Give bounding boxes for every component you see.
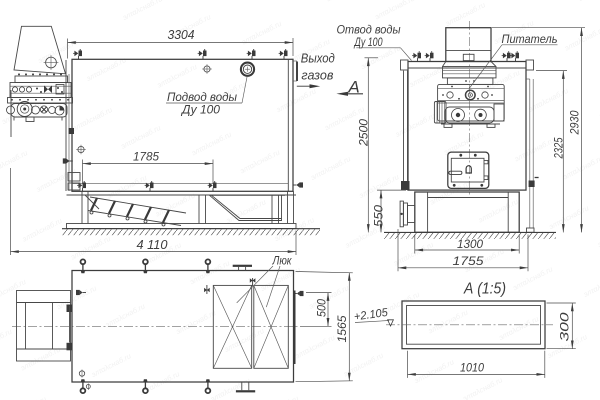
svg-text:элταλснаб.ru: элταλснаб.ru xyxy=(121,0,165,22)
svg-text:элταλснаб.ru: элταλснаб.ru xyxy=(55,283,99,311)
svg-text:4 110: 4 110 xyxy=(137,237,169,252)
svg-text:элταλснаб.ru: элταλснаб.ru xyxy=(259,265,303,293)
svg-text:газов: газов xyxy=(301,68,333,83)
svg-text:элταλснаб.ru: элταλснаб.ru xyxy=(5,394,49,400)
svg-text:1010: 1010 xyxy=(460,360,484,374)
svg-text:3304: 3304 xyxy=(168,27,195,42)
svg-text:550: 550 xyxy=(373,204,385,227)
svg-text:300: 300 xyxy=(558,312,572,341)
svg-text:элταλснаб.ru: элταλснаб.ru xyxy=(461,375,505,400)
svg-text:2930: 2930 xyxy=(568,110,582,135)
svg-text:Выход: Выход xyxy=(301,51,335,66)
svg-text:элταλснаб.ru: элταλснаб.ru xyxy=(190,129,234,157)
svg-text:1785: 1785 xyxy=(133,150,159,164)
svg-text:элταλснаб.ru: элταλснаб.ru xyxy=(577,0,600,3)
svg-text:элταλснаб.ru: элταλснаб.ru xyxy=(257,394,301,400)
svg-text:элταλснаб.ru: элταλснаб.ru xyxy=(156,62,200,90)
svg-text:элταλснаб.ru: элταλснаб.ru xyxy=(36,37,80,65)
svg-text:элταλснаб.ru: элταλснаб.ru xyxy=(209,376,253,400)
svg-text:элταλснаб.ru: элταλснаб.ru xyxy=(373,0,417,21)
svg-text:элταλснаб.ru: элταλснаб.ru xyxy=(119,123,163,151)
svg-text:1300: 1300 xyxy=(457,237,483,251)
svg-text:элταλснаб.ru: элταλснаб.ru xyxy=(105,172,149,200)
svg-text:элταλснаб.ru: элταλснаб.ru xyxy=(309,154,353,182)
svg-text:элταλснаб.ru: элταλснаб.ru xyxy=(238,147,282,175)
svg-text:элταλснаб.ru: элταλснаб.ru xyxy=(0,148,30,176)
svg-text:элταλснаб.ru: элταλснаб.ru xyxy=(477,196,521,224)
svg-text:2325: 2325 xyxy=(551,137,565,159)
svg-text:Ду 100: Ду 100 xyxy=(353,35,383,49)
svg-text:элταλснаб.ru: элταλснаб.ru xyxy=(444,0,488,28)
svg-text:элταλснаб.ru: элταλснаб.ru xyxy=(596,221,600,249)
svg-text:элταλснаб.ru: элταλснаб.ru xyxy=(71,105,115,133)
svg-text:А (1:5): А (1:5) xyxy=(463,281,506,298)
svg-text:1565: 1565 xyxy=(335,315,349,342)
svg-text:элταλснаб.ru: элταλснаб.ru xyxy=(427,307,471,335)
svg-text:Люк: Люк xyxy=(272,254,293,268)
svg-text:элταλснаб.ru: элταλснаб.ru xyxy=(513,135,557,163)
svg-text:Питатель: Питатель xyxy=(502,32,558,46)
svg-text:элταλснаб.ru: элταλснаб.ru xyxy=(307,283,351,311)
svg-text:500: 500 xyxy=(317,298,329,317)
svg-text:элταλснаб.ru: элταλснаб.ru xyxy=(21,216,65,244)
svg-text:элταλснаб.ru: элταλснаб.ru xyxy=(408,61,452,89)
svg-text:элταλснаб.ru: элταλснаб.ru xyxy=(497,314,541,342)
svg-text:элταλснаб.ru: элταλснаб.ru xyxy=(294,332,338,360)
svg-text:элταλснаб.ru: элταλснаб.ru xyxy=(0,326,14,354)
svg-text:элταλснаб.ru: элταλснаб.ru xyxy=(547,203,591,231)
svg-text:элταλснаб.ru: элταλснаб.ru xyxy=(104,301,148,329)
svg-text:элταλснаб.ru: элταλснаб.ru xyxy=(342,350,386,378)
svg-text:элταλснаб.ru: элταλснаб.ru xyxy=(582,271,600,299)
svg-text:элταλснаб.ru: элταλснаб.ru xyxy=(174,308,218,336)
svg-text:элταλснаб.ru: элταλснаб.ru xyxy=(413,357,457,385)
svg-text:элταλснаб.ru: элταλснаб.ru xyxy=(561,153,600,181)
svg-text:элταλснаб.ru: элταλснаб.ru xyxy=(223,326,267,354)
svg-text:Ду 100: Ду 100 xyxy=(180,103,220,117)
svg-text:элταλснаб.ru: элταλснаб.ru xyxy=(275,86,319,114)
svg-text:элταλснаб.ru: элταλснаб.ru xyxy=(90,351,134,379)
svg-text:элταλснаб.ru: элταλснаб.ru xyxy=(511,264,555,292)
svg-text:элταλснаб.ru: элταλснаб.ru xyxy=(325,0,369,3)
svg-text:элταλснаб.ru: элταλснаб.ru xyxy=(394,111,438,139)
svg-text:элταλснаб.ru: элταλснаб.ru xyxy=(392,240,436,268)
svg-text:элταλснаб.ru: элταλснаб.ru xyxy=(358,172,402,200)
svg-text:1755: 1755 xyxy=(453,254,484,268)
svg-text:2500: 2500 xyxy=(357,119,371,147)
svg-text:элταλснаб.ru: элταλснаб.ru xyxy=(69,234,113,262)
